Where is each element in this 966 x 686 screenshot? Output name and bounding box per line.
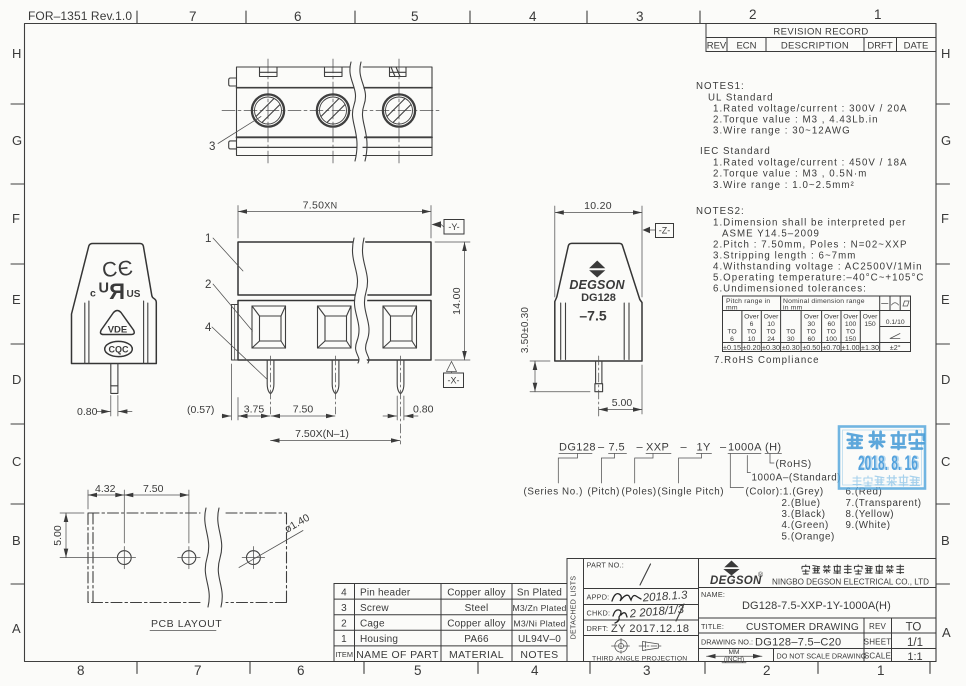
- svg-text:MM: MM: [729, 649, 740, 656]
- svg-text:(Poles): (Poles): [622, 487, 657, 498]
- svg-text:DRFT:: DRFT:: [587, 624, 609, 633]
- svg-text:±1.30: ±1.30: [861, 343, 879, 352]
- svg-text:NAME OF PART: NAME OF PART: [356, 649, 439, 661]
- svg-text:1Y: 1Y: [697, 442, 712, 454]
- svg-text:0.80: 0.80: [77, 406, 98, 418]
- svg-text:2.Torque value : M3 , 0.5N·m: 2.Torque value : M3 , 0.5N·m: [713, 169, 867, 180]
- svg-text:A: A: [942, 625, 951, 640]
- svg-text:CUSTOMER DRAWING: CUSTOMER DRAWING: [746, 622, 859, 633]
- svg-text:-X-: -X-: [448, 376, 460, 386]
- svg-text:7: 7: [194, 663, 202, 678]
- svg-text:D: D: [941, 372, 950, 387]
- svg-text:±0.70: ±0.70: [822, 343, 840, 352]
- svg-text:ITEM: ITEM: [335, 650, 353, 659]
- svg-text:150: 150: [845, 336, 857, 343]
- svg-text:B: B: [941, 533, 950, 548]
- svg-text:Pin header: Pin header: [360, 588, 411, 599]
- svg-text:(Series No.): (Series No.): [524, 487, 583, 498]
- svg-text:TO: TO: [747, 329, 756, 336]
- svg-text:(Color):1.(Grey): (Color):1.(Grey): [746, 487, 824, 498]
- svg-text:DG128–7.5–C20: DG128–7.5–C20: [755, 637, 841, 649]
- svg-text:DATE: DATE: [904, 41, 929, 52]
- svg-text:C: C: [941, 454, 950, 469]
- svg-text:ZY 2017.12.18: ZY 2017.12.18: [611, 623, 689, 635]
- svg-text:F: F: [941, 211, 949, 226]
- svg-text:CQC: CQC: [109, 345, 130, 355]
- svg-text:150: 150: [864, 321, 876, 328]
- svg-text:7.5: 7.5: [609, 442, 626, 454]
- svg-text:DG128-7.5-XXP-1Y-1000A(H): DG128-7.5-XXP-1Y-1000A(H): [742, 600, 891, 612]
- svg-text:6: 6: [297, 663, 305, 678]
- svg-text:DO NOT SCALE DRAWING: DO NOT SCALE DRAWING: [777, 651, 867, 660]
- svg-text:4.(Green): 4.(Green): [782, 520, 829, 531]
- svg-text:3: 3: [341, 603, 347, 614]
- svg-text:SCALE: SCALE: [864, 652, 891, 661]
- svg-text:4: 4: [531, 663, 539, 678]
- svg-text:DG128: DG128: [559, 442, 596, 454]
- svg-text:TO: TO: [846, 329, 855, 336]
- svg-text:0.1/10: 0.1/10: [886, 319, 905, 326]
- svg-text:Housing: Housing: [360, 634, 398, 645]
- svg-text:c: c: [90, 288, 96, 300]
- svg-text:R: R: [109, 279, 125, 304]
- svg-text:REV: REV: [707, 41, 727, 52]
- svg-text:APPD:: APPD:: [587, 593, 610, 602]
- svg-text:4: 4: [341, 588, 347, 599]
- svg-text:–: –: [681, 442, 688, 454]
- svg-text:DRFT: DRFT: [867, 41, 893, 52]
- svg-text:(INCH): (INCH): [724, 656, 744, 663]
- svg-text:Over: Over: [863, 314, 878, 321]
- svg-text:(H): (H): [765, 442, 781, 454]
- svg-text:in mm: in mm: [783, 305, 803, 312]
- svg-text:3.75: 3.75: [244, 404, 265, 416]
- svg-text:NAME:: NAME:: [701, 590, 725, 599]
- svg-text:UL Standard: UL Standard: [708, 93, 774, 104]
- svg-text:30: 30: [787, 336, 795, 343]
- svg-text:3.50±0.30: 3.50±0.30: [520, 307, 531, 353]
- svg-text:±0.30: ±0.30: [762, 343, 780, 352]
- svg-text:60: 60: [808, 336, 816, 343]
- svg-text:TO: TO: [807, 329, 816, 336]
- svg-text:1.Dimension shall be interpret: 1.Dimension shall be interpreted per: [713, 218, 906, 229]
- svg-text:7.50: 7.50: [293, 404, 314, 416]
- svg-text:5: 5: [411, 9, 419, 24]
- svg-text:7.RoHS Compliance: 7.RoHS Compliance: [714, 355, 820, 366]
- svg-text:-Y-: -Y-: [448, 222, 459, 232]
- svg-text:(0.57): (0.57): [187, 404, 214, 416]
- svg-text:Over: Over: [804, 314, 819, 321]
- svg-text:1:1: 1:1: [907, 651, 922, 663]
- svg-text:6.Undimensioned tolerances:: 6.Undimensioned tolerances:: [713, 284, 867, 295]
- svg-text:2.Torque value : M3 , 4.43Lb.i: 2.Torque value : M3 , 4.43Lb.in: [713, 115, 879, 126]
- svg-text:6: 6: [730, 336, 734, 343]
- svg-text:4: 4: [529, 9, 537, 24]
- svg-text:DEGSON: DEGSON: [569, 278, 625, 292]
- svg-text:-Z-: -Z-: [659, 226, 671, 236]
- svg-text:6: 6: [294, 9, 302, 24]
- svg-text:TO: TO: [766, 329, 775, 336]
- svg-text:Є: Є: [117, 257, 134, 281]
- svg-text:–7.5: –7.5: [579, 308, 606, 324]
- svg-text:mm: mm: [726, 305, 738, 312]
- svg-text:3.Wire range : 1.0~2.5mm²: 3.Wire range : 1.0~2.5mm²: [713, 180, 855, 191]
- svg-text:5.00: 5.00: [52, 525, 64, 546]
- svg-text:F: F: [12, 211, 20, 226]
- svg-text:1: 1: [205, 233, 211, 245]
- svg-text:PART NO.:: PART NO.:: [587, 561, 624, 570]
- svg-text:6: 6: [750, 321, 754, 328]
- svg-text:1: 1: [877, 663, 885, 678]
- svg-text:2.Pitch : 7.50mm, Poles : N=02: 2.Pitch : 7.50mm, Poles : N=02~XXP: [713, 240, 908, 251]
- svg-text:®: ®: [758, 571, 764, 579]
- svg-text:1.Rated voltage/current : 450V: 1.Rated voltage/current : 450V / 18A: [713, 158, 908, 169]
- svg-text:E: E: [12, 292, 21, 307]
- svg-text:DEGSON: DEGSON: [710, 575, 762, 587]
- svg-text:60: 60: [828, 321, 836, 328]
- svg-text:IEC Standard: IEC Standard: [700, 146, 771, 157]
- svg-text:2: 2: [341, 619, 347, 630]
- svg-text:1: 1: [341, 634, 347, 645]
- svg-text:ECN: ECN: [736, 41, 756, 52]
- svg-text:1/1: 1/1: [907, 637, 923, 649]
- svg-text:5: 5: [414, 663, 422, 678]
- svg-text:3: 3: [636, 9, 644, 24]
- svg-text:ASME Y14.5–2009: ASME Y14.5–2009: [722, 229, 820, 240]
- svg-text:DETACHED LISTS: DETACHED LISTS: [571, 576, 578, 640]
- svg-text:14.00: 14.00: [451, 287, 463, 315]
- svg-text:±1.00: ±1.00: [842, 343, 860, 352]
- svg-text:NINGBO DEGSON ELECTRICAL CO.,: NINGBO DEGSON ELECTRICAL CO., LTD: [772, 578, 929, 587]
- svg-text:Over: Over: [824, 314, 839, 321]
- svg-text:2: 2: [763, 663, 771, 678]
- svg-text:Steel: Steel: [465, 603, 489, 614]
- svg-text:TO: TO: [827, 329, 836, 336]
- svg-text:5.(Orange): 5.(Orange): [782, 532, 835, 543]
- svg-text:G: G: [941, 133, 951, 148]
- svg-text:10: 10: [767, 321, 775, 328]
- svg-text:U: U: [99, 281, 109, 297]
- svg-text:CHKD:: CHKD:: [587, 609, 611, 618]
- svg-text:–: –: [720, 442, 727, 454]
- svg-text:G: G: [12, 133, 22, 148]
- svg-text:FOR–1351 Rev.1.0: FOR–1351 Rev.1.0: [28, 9, 132, 23]
- svg-text:±0.15: ±0.15: [723, 343, 741, 352]
- svg-text:Over: Over: [764, 314, 779, 321]
- svg-text:4: 4: [205, 322, 212, 334]
- svg-text:–: –: [598, 442, 605, 454]
- svg-text:2018. 8. 16: 2018. 8. 16: [860, 452, 920, 475]
- svg-text:30: 30: [808, 321, 816, 328]
- svg-text:NOTES: NOTES: [520, 649, 558, 661]
- svg-text:±0.50: ±0.50: [802, 343, 820, 352]
- svg-text:MATERIAL: MATERIAL: [449, 649, 504, 661]
- svg-text:1: 1: [874, 7, 882, 22]
- svg-text:8.(Yellow): 8.(Yellow): [846, 509, 895, 520]
- svg-text:DG128: DG128: [581, 292, 616, 304]
- svg-text:M3/Ni Plated: M3/Ni Plated: [513, 619, 565, 629]
- svg-text:XXP: XXP: [646, 442, 669, 454]
- svg-text:2.(Blue): 2.(Blue): [782, 498, 821, 509]
- svg-text:(RoHS): (RoHS): [776, 459, 812, 470]
- svg-text:8: 8: [77, 663, 85, 678]
- svg-text:H: H: [12, 46, 21, 61]
- svg-text:TO: TO: [906, 622, 922, 634]
- svg-text:7.50: 7.50: [143, 483, 164, 495]
- svg-text:100: 100: [845, 321, 857, 328]
- svg-text:Over: Over: [744, 314, 759, 321]
- svg-text:H: H: [941, 46, 950, 61]
- svg-text:TO: TO: [727, 329, 736, 336]
- svg-text:E: E: [941, 292, 950, 307]
- svg-text:DESCRIPTION: DESCRIPTION: [781, 41, 849, 52]
- svg-text:3: 3: [643, 663, 651, 678]
- svg-text:3.(Black): 3.(Black): [782, 509, 826, 520]
- svg-text:5.00: 5.00: [612, 397, 633, 409]
- svg-text:Cage: Cage: [360, 619, 385, 630]
- svg-text:A: A: [12, 621, 21, 636]
- svg-text:SHEET: SHEET: [864, 638, 892, 647]
- svg-text:Over: Over: [843, 314, 858, 321]
- svg-text:3.Stripping length : 6~7mm: 3.Stripping length : 6~7mm: [713, 251, 856, 262]
- svg-text:9.(White): 9.(White): [846, 520, 891, 531]
- svg-text:REV: REV: [869, 622, 887, 631]
- svg-text:2: 2: [205, 279, 211, 291]
- svg-text:–: –: [637, 442, 644, 454]
- svg-text:24: 24: [767, 336, 775, 343]
- svg-text:(Pitch): (Pitch): [588, 487, 621, 498]
- svg-text:1.Rated voltage/current : 300V: 1.Rated voltage/current : 300V / 20A: [713, 104, 908, 115]
- svg-text:1000A–(Standard): 1000A–(Standard): [752, 473, 842, 484]
- svg-text:DRAWING NO.:: DRAWING NO.:: [701, 638, 753, 647]
- svg-text:NOTES2:: NOTES2:: [696, 206, 745, 217]
- svg-text:THIRD ANGLE PROJECTION: THIRD ANGLE PROJECTION: [592, 656, 687, 663]
- svg-text:±2°: ±2°: [890, 343, 901, 352]
- svg-text:10: 10: [748, 336, 756, 343]
- svg-text:1000A: 1000A: [728, 442, 762, 454]
- svg-text:Copper alloy: Copper alloy: [447, 619, 506, 630]
- svg-text:Screw: Screw: [360, 603, 389, 614]
- svg-text:7.50XN: 7.50XN: [303, 200, 338, 212]
- svg-text:NOTES1:: NOTES1:: [696, 81, 745, 92]
- svg-text:REVISION RECORD: REVISION RECORD: [773, 27, 868, 38]
- svg-text:3.Wire range : 30~12AWG: 3.Wire range : 30~12AWG: [713, 126, 851, 137]
- svg-text:4.32: 4.32: [95, 483, 116, 495]
- svg-text:Sn Plated: Sn Plated: [517, 588, 562, 599]
- svg-text:2: 2: [749, 7, 757, 22]
- svg-text:D: D: [12, 372, 21, 387]
- svg-text:TITLE:: TITLE:: [701, 622, 724, 631]
- svg-text:±0.20: ±0.20: [743, 343, 761, 352]
- svg-text:Copper alloy: Copper alloy: [447, 588, 506, 599]
- svg-text:TO: TO: [786, 329, 795, 336]
- svg-text:M3/Zn Plated: M3/Zn Plated: [512, 603, 566, 613]
- svg-text:PCB LAYOUT: PCB LAYOUT: [151, 618, 222, 630]
- svg-text:7: 7: [189, 9, 197, 24]
- svg-text:VDE: VDE: [108, 325, 128, 336]
- svg-text:4.Withstanding voltage : AC250: 4.Withstanding voltage : AC2500V/1Min: [713, 262, 923, 273]
- svg-text:5.Operating temperature:–40°C~: 5.Operating temperature:–40°C~+105°C: [713, 273, 924, 284]
- svg-text:7.50X(N–1): 7.50X(N–1): [295, 428, 349, 440]
- svg-text:UL94V–0: UL94V–0: [518, 634, 561, 645]
- svg-text:7.(Transparent): 7.(Transparent): [846, 498, 922, 509]
- svg-text:3: 3: [209, 141, 215, 153]
- svg-text:PA66: PA66: [464, 634, 489, 645]
- svg-text:C: C: [12, 454, 21, 469]
- svg-text:B: B: [12, 533, 21, 548]
- svg-text:US: US: [127, 289, 141, 300]
- svg-text:±0.30: ±0.30: [782, 343, 800, 352]
- svg-text:(Single Pitch): (Single Pitch): [658, 487, 725, 498]
- svg-text:10.20: 10.20: [584, 200, 612, 212]
- svg-text:0.80: 0.80: [413, 404, 434, 416]
- svg-text:100: 100: [826, 336, 838, 343]
